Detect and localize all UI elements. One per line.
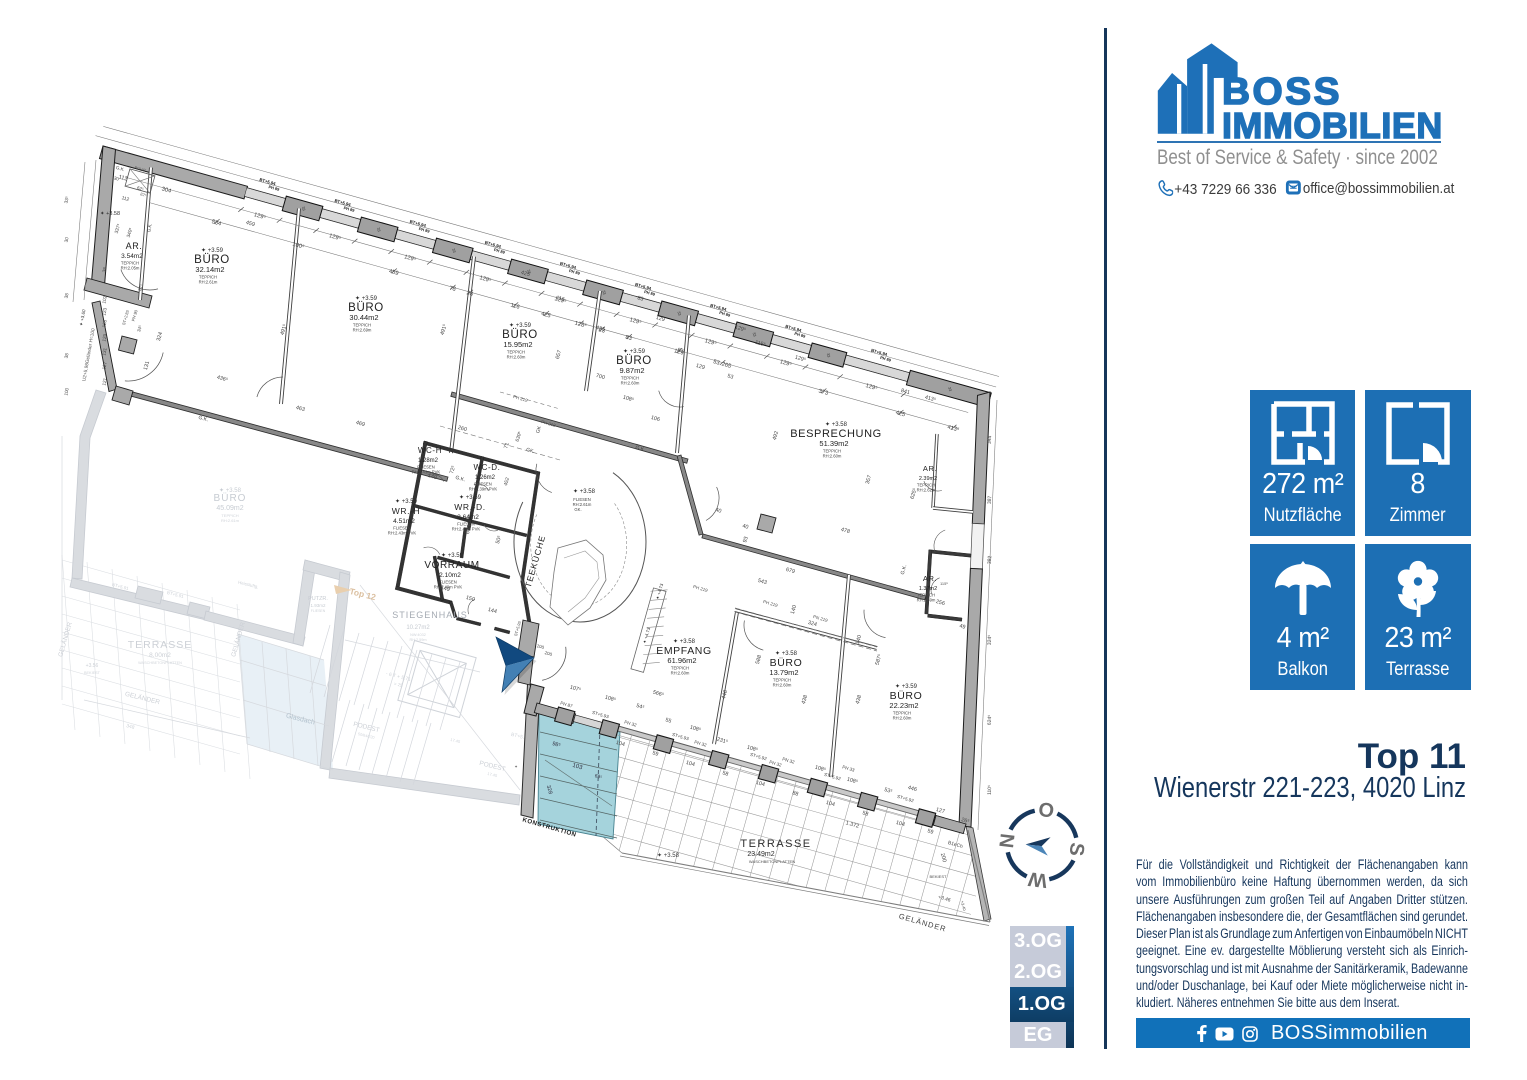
svg-text:RH:2.60m: RH:2.60m: [671, 671, 690, 676]
svg-text:WC-D.: WC-D.: [474, 463, 501, 472]
svg-text:BEKIEST: BEKIEST: [84, 671, 101, 675]
svg-text:30: 30: [113, 175, 120, 181]
svg-text:✦ +3.58: ✦ +3.58: [673, 638, 696, 645]
svg-text:BEKIEST: BEKIEST: [930, 874, 947, 879]
svg-text:PH 218: PH 218: [541, 419, 557, 428]
svg-text:Top 12: Top 12: [349, 586, 378, 602]
svg-text:140: 140: [790, 605, 798, 615]
svg-text:PH 89: PH 89: [719, 310, 732, 318]
svg-text:58: 58: [862, 810, 869, 817]
svg-text:108⁵: 108⁵: [846, 777, 858, 786]
svg-text:+3.46: +3.46: [937, 894, 951, 903]
svg-text:413⁵: 413⁵: [947, 424, 961, 434]
svg-text:GK.: GK.: [525, 447, 535, 455]
svg-text:45.09m2: 45.09m2: [216, 505, 243, 512]
svg-text:✦ +3.58: ✦ +3.58: [573, 488, 596, 495]
svg-text:448: 448: [721, 690, 729, 700]
svg-text:RH:2.69m: RH:2.69m: [353, 328, 372, 333]
svg-text:373: 373: [818, 389, 829, 397]
svg-text:382: 382: [987, 555, 993, 564]
svg-text:RH:2.59m: RH:2.59m: [409, 638, 426, 642]
svg-text:1.26m2: 1.26m2: [475, 475, 496, 481]
svg-text:PH 33: PH 33: [842, 764, 856, 772]
svg-text:PH 89: PH 89: [880, 355, 893, 363]
svg-text:129⁵: 129⁵: [629, 316, 643, 326]
svg-text:FLIESEN: FLIESEN: [311, 609, 326, 613]
svg-text:100: 100: [63, 387, 69, 396]
svg-text:9.87m2: 9.87m2: [619, 366, 644, 375]
svg-text:129⁵: 129⁵: [779, 358, 793, 368]
svg-text:624⁵: 624⁵: [987, 715, 994, 726]
svg-text:TERRASSE: TERRASSE: [128, 639, 193, 651]
svg-text:G.K.: G.K.: [146, 223, 152, 233]
svg-text:✦ +3.60: ✦ +3.60: [79, 309, 87, 327]
svg-text:G.K.: G.K.: [198, 415, 209, 424]
svg-text:RH:2.60m: RH:2.60m: [621, 381, 640, 386]
svg-text:4.51m2: 4.51m2: [393, 518, 415, 525]
svg-text:✦ +3.58: ✦ +3.58: [825, 421, 848, 428]
svg-text:104: 104: [895, 820, 905, 828]
svg-text:324⁵: 324⁵: [987, 635, 994, 646]
svg-text:566⁵: 566⁵: [652, 690, 664, 699]
svg-text:RH:2.43m PVK: RH:2.43m PVK: [388, 531, 417, 536]
svg-text:700: 700: [595, 373, 605, 381]
svg-text:✦ +3.59: ✦ +3.59: [895, 683, 918, 690]
svg-text:357: 357: [865, 475, 873, 485]
svg-text:15.95m2: 15.95m2: [503, 340, 532, 349]
svg-text:PH 89: PH 89: [418, 226, 431, 234]
svg-text:88: 88: [792, 790, 799, 797]
svg-text:WC-H: WC-H: [418, 446, 442, 455]
svg-text:✦ +3.58: ✦ +3.58: [775, 650, 798, 657]
svg-text:GELÄNDER: GELÄNDER: [56, 621, 74, 658]
svg-text:54⁵: 54⁵: [635, 703, 645, 711]
svg-text:ST+5.93: ST+5.93: [591, 710, 609, 720]
svg-text:478: 478: [840, 527, 850, 535]
svg-text:RH:2.60m: RH:2.60m: [823, 454, 842, 459]
svg-text:108⁵: 108⁵: [689, 725, 701, 734]
svg-text:38: 38: [64, 292, 70, 298]
svg-text:340⁵: 340⁵: [126, 227, 135, 238]
svg-text:RH:2.05m: RH:2.05m: [121, 266, 140, 271]
svg-text:RH:2.60m: RH:2.60m: [507, 355, 526, 360]
svg-text:59: 59: [927, 828, 934, 835]
svg-text:23.49m2: 23.49m2: [747, 851, 774, 858]
svg-text:✦ +3.58: ✦ +3.58: [657, 852, 680, 859]
svg-text:3.54m2: 3.54m2: [121, 253, 143, 260]
svg-text:Heissluftg.: Heissluftg.: [238, 580, 260, 590]
svg-text:304: 304: [161, 186, 173, 195]
svg-text:1.372: 1.372: [845, 820, 860, 830]
svg-text:ST+5.93: ST+5.93: [671, 732, 689, 742]
svg-text:53 265: 53 265: [712, 359, 731, 370]
svg-text:104: 104: [685, 760, 695, 768]
svg-text:38: 38: [64, 352, 70, 358]
svg-text:✦ +3.59: ✦ +3.59: [441, 552, 464, 559]
svg-text:129⁵: 129⁵: [794, 355, 806, 364]
svg-text:GELÄNDER: GELÄNDER: [124, 690, 161, 706]
svg-text:22.23m2: 22.23m2: [889, 701, 918, 710]
svg-text:128: 128: [101, 319, 107, 328]
svg-text:200: 200: [544, 650, 553, 657]
svg-text:✦ +4.73: ✦ +4.73: [642, 627, 651, 645]
svg-text:RH:2.60m: RH:2.60m: [893, 716, 912, 721]
svg-text:✦: ✦: [514, 764, 518, 769]
svg-text:✦ +3.59: ✦ +3.59: [395, 498, 418, 505]
svg-text:GK: GK: [535, 425, 543, 434]
svg-text:49: 49: [959, 623, 966, 630]
svg-text:71: 71: [503, 442, 510, 449]
svg-text:40: 40: [742, 523, 749, 530]
svg-text:PH 32: PH 32: [694, 739, 708, 747]
svg-text:129⁵: 129⁵: [253, 211, 267, 221]
svg-text:28: 28: [466, 290, 474, 298]
svg-text:RH:2.62m: RH:2.62m: [917, 488, 936, 493]
svg-text:116: 116: [510, 303, 521, 311]
svg-text:129⁵: 129⁵: [704, 337, 718, 347]
svg-text:459: 459: [388, 269, 399, 277]
svg-text:149: 149: [427, 473, 437, 481]
svg-text:G.K.: G.K.: [900, 564, 909, 575]
svg-text:108⁵: 108⁵: [622, 395, 634, 404]
svg-text:ST+5.92: ST+5.92: [823, 772, 841, 782]
svg-text:34⁵: 34⁵: [136, 324, 143, 332]
svg-text:AR.: AR.: [923, 464, 937, 473]
svg-text:17.45: 17.45: [487, 771, 499, 778]
svg-text:128⁵: 128⁵: [574, 320, 588, 330]
svg-text:RH:2.59m: RH:2.59m: [917, 598, 936, 603]
svg-text:40: 40: [715, 507, 722, 514]
svg-text:50/64/220: 50/64/220: [358, 732, 375, 740]
svg-text:PH 219: PH 219: [693, 584, 709, 593]
svg-text:+3.56: +3.56: [86, 663, 99, 669]
svg-text:436⁵: 436⁵: [216, 375, 228, 384]
svg-text:452: 452: [503, 477, 511, 487]
svg-text:PH 89: PH 89: [644, 289, 657, 297]
svg-text:✦ +3.59: ✦ +3.59: [355, 295, 378, 302]
svg-text:RH:2.61m: RH:2.61m: [199, 280, 218, 285]
svg-text:324: 324: [156, 332, 164, 342]
svg-text:324: 324: [807, 620, 817, 628]
svg-text:459: 459: [245, 220, 255, 228]
svg-text:131: 131: [143, 361, 151, 371]
svg-text:2.64m2: 2.64m2: [457, 514, 479, 521]
svg-text:PH 32: PH 32: [624, 719, 638, 727]
svg-text:256: 256: [935, 599, 945, 607]
svg-text:1.37m2: 1.37m2: [919, 586, 937, 592]
svg-text:106: 106: [650, 415, 660, 423]
svg-text:344: 344: [987, 435, 993, 444]
svg-text:17.45: 17.45: [450, 737, 462, 744]
svg-text:WASCHBETONPLATTEN: WASCHBETONPLATTEN: [749, 859, 795, 864]
svg-text:13.79m2: 13.79m2: [769, 668, 798, 677]
svg-text:413⁵: 413⁵: [924, 395, 936, 404]
svg-text:PH 89: PH 89: [343, 205, 356, 213]
svg-text:104: 104: [755, 780, 765, 788]
svg-text:337⁵: 337⁵: [114, 223, 123, 234]
svg-text:✦ +3.58: ✦ +3.58: [100, 210, 120, 217]
svg-text:2.10m2: 2.10m2: [439, 572, 461, 579]
svg-text:657: 657: [555, 350, 563, 360]
svg-text:PH 89: PH 89: [493, 247, 506, 255]
svg-text:425: 425: [540, 311, 551, 319]
svg-text:GELÄNDER: GELÄNDER: [898, 911, 948, 933]
svg-text:93: 93: [742, 536, 749, 543]
svg-text:491⁵: 491⁵: [440, 323, 449, 335]
svg-text:625⁵: 625⁵: [910, 487, 919, 499]
svg-text:RH:2.39m PVK: RH:2.39m PVK: [469, 487, 498, 492]
svg-text:WR.-D.: WR.-D.: [454, 502, 485, 512]
svg-text:WASCHBETONPLATTEN: WASCHBETONPLATTEN: [138, 661, 182, 665]
svg-text:33⁵: 33⁵: [63, 196, 69, 204]
svg-text:534: 534: [211, 219, 223, 228]
svg-text:PODEST: PODEST: [353, 721, 381, 734]
svg-text:59: 59: [652, 750, 659, 757]
svg-text:NW:4032: NW:4032: [410, 633, 426, 637]
svg-text:PH 89: PH 89: [268, 184, 281, 192]
svg-text:200: 200: [939, 853, 947, 863]
svg-text:55: 55: [665, 717, 672, 724]
svg-text:STIEGENHAUS: STIEGENHAUS: [392, 610, 468, 620]
svg-text:53⁵: 53⁵: [883, 787, 893, 795]
svg-text:51.39m2: 51.39m2: [819, 439, 848, 448]
svg-text:112: 112: [121, 195, 130, 203]
svg-text:129⁵: 129⁵: [403, 253, 417, 263]
svg-text:1.93m2: 1.93m2: [310, 603, 326, 608]
svg-text:AR.: AR.: [126, 241, 143, 251]
svg-text:S: S: [1065, 841, 1088, 857]
svg-text:438: 438: [801, 695, 809, 705]
svg-text:112: 112: [118, 174, 129, 182]
svg-text:PH 219: PH 219: [763, 599, 779, 608]
svg-text:10.27m2: 10.27m2: [406, 625, 430, 631]
svg-text:G.K.: G.K.: [115, 165, 125, 172]
svg-text:PUTZR.: PUTZR.: [308, 596, 328, 602]
svg-text:129⁵: 129⁵: [865, 382, 879, 392]
svg-text:38: 38: [102, 266, 108, 272]
svg-text:AR.: AR.: [923, 574, 937, 583]
svg-text:PH 89: PH 89: [568, 268, 581, 276]
svg-text:✦ +3.59: ✦ +3.59: [201, 247, 224, 254]
svg-text:RH:2.60m: RH:2.60m: [773, 683, 792, 688]
svg-text:129: 129: [655, 315, 665, 323]
svg-text:588: 588: [755, 655, 763, 665]
svg-text:78: 78: [448, 285, 456, 293]
svg-text:100: 100: [536, 643, 545, 650]
svg-text:348: 348: [125, 723, 135, 731]
svg-text:✦ +4.73: ✦ +4.73: [655, 583, 664, 601]
svg-text:108⁵: 108⁵: [604, 695, 616, 704]
svg-text:PN 32: PN 32: [782, 756, 796, 764]
svg-text:PH 219: PH 219: [513, 394, 529, 403]
svg-text:1.28m2: 1.28m2: [418, 458, 439, 464]
svg-text:72⁵: 72⁵: [449, 465, 457, 475]
svg-text:53: 53: [727, 373, 734, 380]
svg-text:✦ +3.59: ✦ +3.59: [623, 348, 646, 355]
svg-text:8.00m2: 8.00m2: [149, 652, 171, 659]
svg-text:ST+5.92: ST+5.92: [749, 752, 767, 762]
svg-text:2.39m2: 2.39m2: [919, 476, 937, 482]
svg-text:107⁵: 107⁵: [569, 685, 581, 694]
svg-text:B1eCh: B1eCh: [947, 840, 964, 850]
svg-text:387: 387: [987, 495, 993, 504]
svg-text:127: 127: [935, 807, 945, 815]
svg-text:RH:2.61m: RH:2.61m: [221, 518, 240, 523]
svg-text:603: 603: [465, 525, 473, 535]
svg-text:50⁵: 50⁵: [495, 535, 503, 545]
svg-text:TERRASSE: TERRASSE: [740, 838, 811, 850]
svg-text:231⁵: 231⁵: [716, 737, 728, 746]
svg-text:PH 90: PH 90: [131, 309, 139, 322]
svg-text:WR.-H: WR.-H: [392, 506, 421, 516]
svg-text:PH 89: PH 89: [794, 331, 807, 339]
svg-text:= 25: = 25: [393, 681, 403, 688]
svg-text:BT+5.91: BT+5.91: [166, 590, 184, 599]
svg-text:G.K.: G.K.: [635, 445, 646, 454]
svg-text:O: O: [1037, 799, 1055, 823]
svg-text:RH:2.43m PVK: RH:2.43m PVK: [412, 470, 441, 475]
svg-text:30: 30: [64, 236, 70, 242]
svg-text:58: 58: [722, 770, 729, 777]
svg-text:260: 260: [457, 425, 467, 433]
svg-text:121: 121: [101, 377, 107, 386]
svg-text:463: 463: [295, 405, 305, 413]
svg-text:82⁵: 82⁵: [140, 191, 148, 198]
svg-text:841: 841: [900, 388, 910, 396]
svg-text:102: 102: [101, 295, 107, 304]
svg-text:ST+2.83: ST+2.83: [121, 309, 130, 326]
svg-text:VORRAUM: VORRAUM: [424, 560, 479, 571]
svg-text:30.44m2: 30.44m2: [349, 313, 378, 322]
svg-text:438: 438: [855, 695, 863, 705]
svg-text:129⁵: 129⁵: [328, 232, 342, 242]
svg-text:W: W: [1027, 867, 1049, 891]
svg-text:GK.: GK.: [574, 507, 581, 512]
svg-text:543: 543: [757, 578, 767, 586]
svg-text:G.K.: G.K.: [455, 475, 466, 484]
svg-text:104: 104: [825, 800, 835, 808]
svg-text:425: 425: [595, 325, 605, 333]
svg-text:U2+5.98Geländer H=100: U2+5.98Geländer H=100: [81, 328, 96, 382]
svg-text:83: 83: [625, 335, 633, 343]
svg-text:492: 492: [772, 431, 780, 441]
svg-text:469: 469: [355, 420, 365, 428]
svg-text:630⁵: 630⁵: [515, 431, 524, 443]
svg-text:129: 129: [695, 363, 705, 371]
svg-text:425: 425: [895, 410, 906, 418]
svg-text:129⁵: 129⁵: [479, 274, 493, 284]
svg-text:679: 679: [785, 567, 795, 575]
svg-text:BÜRO: BÜRO: [214, 492, 247, 504]
svg-text:587⁵: 587⁵: [875, 653, 884, 665]
svg-text:115⁵: 115⁵: [940, 581, 948, 586]
svg-text:61.96m2: 61.96m2: [667, 656, 696, 665]
svg-text:✦ +3.59: ✦ +3.59: [459, 494, 482, 501]
svg-text:123: 123: [101, 307, 107, 316]
svg-text:ST+5.92: ST+5.92: [896, 794, 914, 804]
svg-text:+3.40: +3.40: [960, 900, 968, 912]
svg-text:144: 144: [487, 607, 497, 615]
svg-text:✦ +3.59: ✦ +3.59: [509, 322, 532, 329]
svg-text:150: 150: [465, 595, 475, 603]
svg-text:446: 446: [907, 785, 917, 793]
svg-text:N: N: [996, 832, 1020, 849]
svg-text:32.14m2: 32.14m2: [195, 265, 224, 274]
